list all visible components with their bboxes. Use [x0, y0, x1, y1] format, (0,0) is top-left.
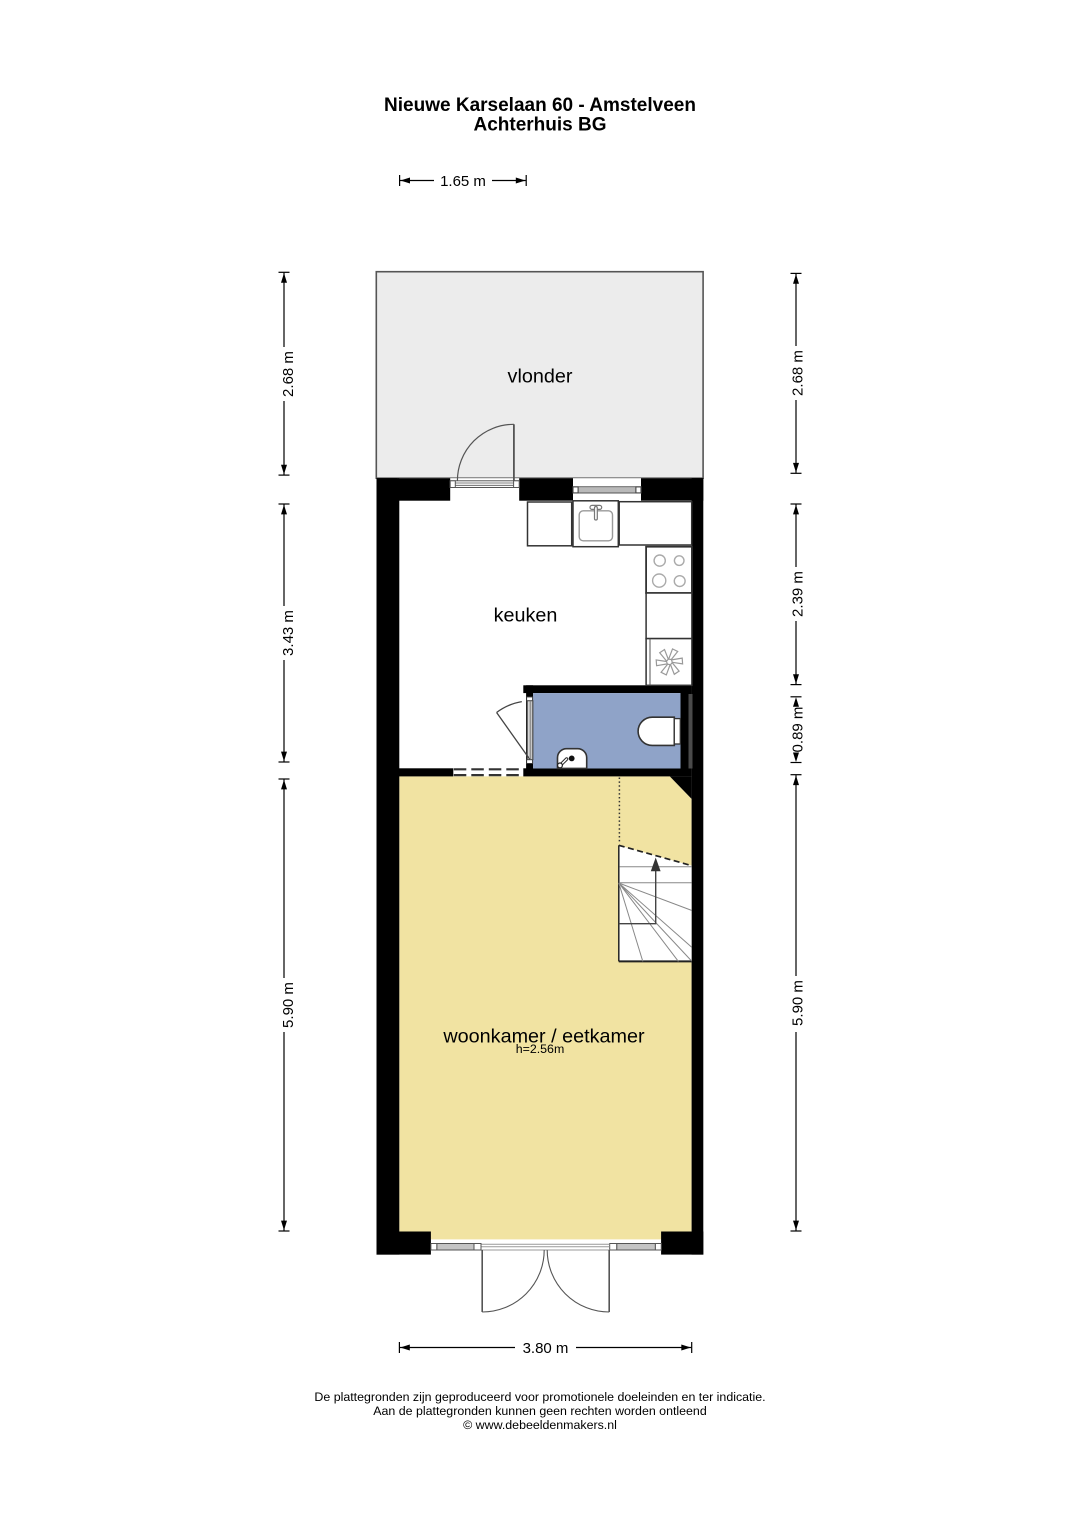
svg-text:2.68 m: 2.68 m — [790, 350, 807, 396]
svg-text:Aan de plattegronden kunnen ge: Aan de plattegronden kunnen geen rechten… — [373, 1404, 707, 1418]
svg-text:keuken: keuken — [494, 605, 558, 627]
svg-text:Achterhuis BG: Achterhuis BG — [473, 114, 606, 135]
svg-text:5.90 m: 5.90 m — [790, 980, 807, 1026]
svg-text:0.89 m: 0.89 m — [790, 707, 807, 753]
svg-text:vlonder: vlonder — [508, 366, 573, 388]
svg-text:2.68 m: 2.68 m — [280, 351, 297, 397]
svg-text:h=2.56m: h=2.56m — [516, 1042, 565, 1056]
svg-text:De plattegronden zijn geproduc: De plattegronden zijn geproduceerd voor … — [314, 1390, 765, 1404]
svg-text:© www.debeeldenmakers.nl: © www.debeeldenmakers.nl — [463, 1418, 617, 1432]
svg-text:2.39 m: 2.39 m — [790, 571, 807, 617]
svg-text:5.90 m: 5.90 m — [280, 982, 297, 1028]
svg-text:1.65 m: 1.65 m — [440, 173, 486, 190]
svg-text:3.43 m: 3.43 m — [280, 610, 297, 656]
svg-text:3.80 m: 3.80 m — [523, 1340, 569, 1357]
svg-text:Nieuwe Karselaan 60 - Amstelve: Nieuwe Karselaan 60 - Amstelveen — [384, 95, 696, 116]
